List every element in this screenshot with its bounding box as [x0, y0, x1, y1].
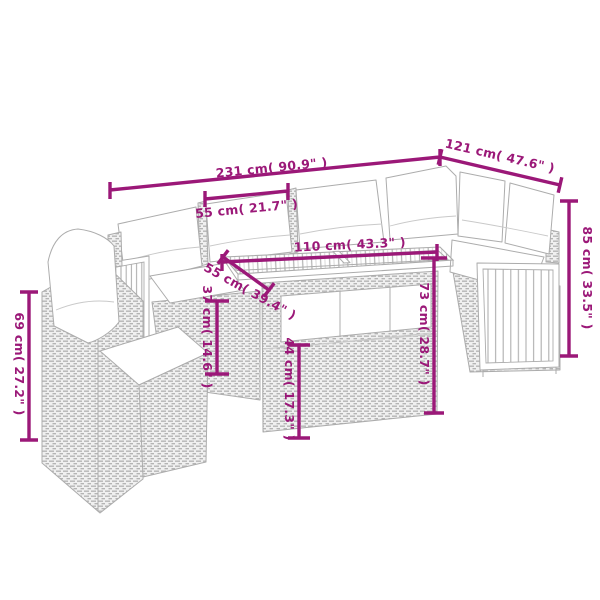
dimension-label: 37 cm( 14.6" ) [200, 285, 215, 388]
right-slat-panel [483, 269, 553, 363]
product-dimension-diagram: 231 cm( 90.9" ) 121 cm( 47.6" ) 55 cm( 2… [0, 0, 600, 600]
dimension-label: 69 cm( 27.2" ) [12, 312, 27, 415]
dimension-line [560, 201, 578, 356]
back-cushion-5 [458, 172, 505, 242]
furniture-dimension-illustration: 231 cm( 90.9" ) 121 cm( 47.6" ) 55 cm( 2… [0, 0, 600, 600]
dimension-chair-height: 69 cm( 27.2" ) [12, 292, 38, 440]
back-cushion-4 [386, 166, 458, 240]
dimension-label: 231 cm( 90.9" ) [215, 154, 328, 180]
dimension-label: 44 cm( 17.3" ) [282, 337, 297, 440]
dimension-label: 85 cm( 33.5" ) [580, 226, 595, 329]
chair-back-cushion [48, 229, 119, 343]
dimension-back-height: 85 cm( 33.5" ) [560, 201, 595, 356]
back-cushion-6 [505, 183, 554, 254]
dimension-label: 73 cm( 28.7" ) [417, 282, 432, 385]
right-sofa-section-sketch [477, 263, 559, 377]
